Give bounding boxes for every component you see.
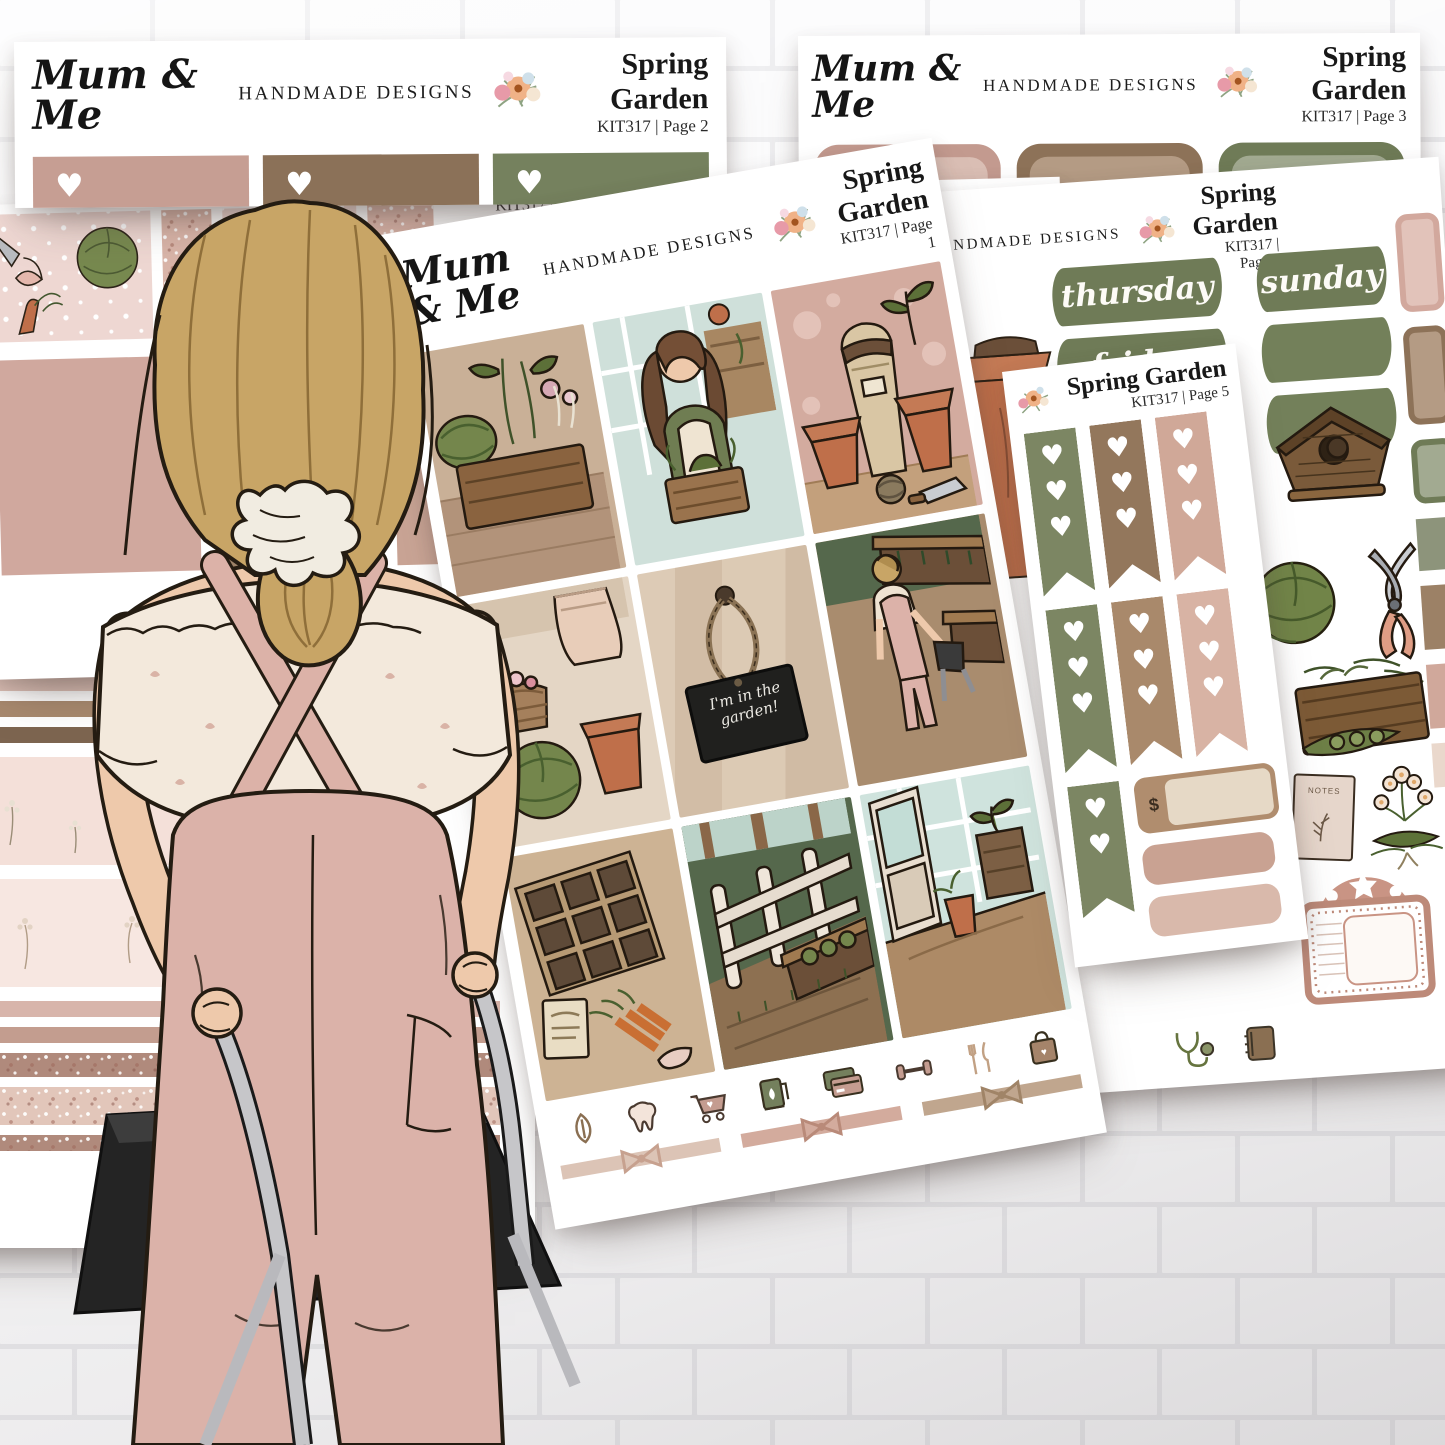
kit-title: Spring Garden [560, 47, 709, 117]
heart-glyph: ♥ [1043, 477, 1070, 507]
full-box-sticker-woman-cart [815, 513, 1027, 786]
fence-garden-illustration [681, 798, 887, 1070]
brick-tile [1240, 1136, 1390, 1202]
shopping-cart-icon: ♥ [686, 1085, 732, 1127]
brick-tile [1317, 1207, 1445, 1273]
brand-logo-caps: HANDMADE DESIGNS [983, 74, 1198, 95]
brand-logo-script: Mum & Me [812, 50, 969, 123]
notes-book-sticker: NOTES [1291, 773, 1356, 861]
heart-checklist-flag: ♥♥♥ [1045, 604, 1117, 773]
pruning-shears-icon [1350, 536, 1444, 667]
brick-tile [930, 1420, 1080, 1445]
heart-glyph: ♥ [1126, 610, 1153, 640]
brick-tile [1085, 1136, 1235, 1202]
garden-cart-woman-illustration [815, 514, 1021, 786]
brick-tile [1317, 1349, 1445, 1415]
heart-glyph: ♥ [1061, 618, 1088, 648]
brick-tile [1240, 1278, 1390, 1344]
pea-pod-icon [1296, 715, 1409, 768]
bow-icon [793, 1106, 850, 1149]
kit-title: Spring Garden [1189, 176, 1278, 242]
notebook-icon [1239, 1022, 1282, 1065]
full-box-sticker-woman-greenhouse [592, 293, 804, 566]
heart-checklist-flag: ♥♥ [1067, 781, 1135, 918]
pink-overalls [133, 791, 503, 1445]
heart-glyph: ♥ [1069, 689, 1096, 719]
brick-tile [930, 1278, 1080, 1344]
brick-tile [697, 1349, 847, 1415]
heart-checklist-flag: ♥♥♥ [1155, 411, 1227, 580]
full-box-sticker-fence-garden [681, 797, 893, 1070]
pill-label-sticker [1147, 882, 1283, 938]
brick-tile [620, 1278, 770, 1344]
brick-tile [1007, 1349, 1157, 1415]
heart-glyph: ♥ [1200, 673, 1227, 703]
day-text: thursday [1060, 269, 1215, 316]
marquee-sign-icon [1296, 859, 1437, 1008]
rounded-box-sticker [1394, 212, 1445, 313]
heart-glyph: ♥ [1104, 433, 1131, 463]
bow-icon [612, 1138, 669, 1181]
stethoscope-icon [1169, 1027, 1216, 1070]
flower-bouquet-icon [488, 67, 546, 119]
sprig-icon [1293, 794, 1349, 846]
heart-glyph: ♥ [1039, 441, 1066, 471]
heart-glyph: ♥ [1135, 681, 1162, 711]
brick-tile [697, 1207, 847, 1273]
full-box-sticker-chalkboard: I'm in the garden! [637, 545, 849, 818]
brick-tile [1395, 1136, 1445, 1202]
brick-tile [775, 1420, 925, 1445]
shopping-bag-icon: ♥ [1022, 1026, 1064, 1070]
full-box-sticker-terracotta-pots [771, 261, 983, 534]
tooth-icon [624, 1098, 663, 1137]
dollar-label: $ [1140, 793, 1168, 817]
cutlery-icon [960, 1037, 1000, 1080]
brick-tile [1085, 1278, 1235, 1344]
heart-glyph: ♥ [1082, 794, 1109, 824]
heart-glyph: ♥ [1048, 513, 1075, 543]
greenhouse-illustration [860, 767, 1066, 1039]
brick-tile [852, 1207, 1002, 1273]
heart-checklist-flag: ♥♥♥ [1089, 419, 1161, 588]
heart-checklist-flag: ♥♥♥ [1176, 588, 1248, 757]
brick-tile [1395, 1420, 1445, 1445]
heart-checklist-flag: ♥♥♥ [1111, 596, 1183, 765]
birdhouse-icon [1260, 395, 1407, 514]
brick-tile [1162, 1349, 1312, 1415]
brick-tile [1162, 1207, 1312, 1273]
full-box-sticker-greenhouse [860, 766, 1072, 1039]
heart-glyph: ♥ [1065, 653, 1092, 683]
brand-logo-caps: HANDMADE DESIGNS [238, 82, 474, 106]
chalkboard-illustration [637, 546, 843, 818]
rounded-box-sticker [1402, 325, 1445, 426]
brick-tile [1240, 1420, 1390, 1445]
product-mockup-scene: Mum & Me HANDMADE DESIGNS [0, 0, 1445, 1445]
heart-glyph: ♥ [1109, 469, 1136, 499]
pill-label-sticker [1141, 831, 1277, 887]
brick-tile [1007, 1207, 1157, 1273]
bow-icon [974, 1074, 1031, 1117]
primrose-flower-icon [1359, 758, 1445, 874]
marquee-sign-sticker [1296, 859, 1437, 1008]
flower-bouquet-icon [1212, 60, 1262, 108]
brick-tile [852, 1349, 1002, 1415]
flower-bouquet-icon [765, 197, 825, 253]
heart-checklist-flag: ♥♥♥ [1024, 427, 1096, 596]
budget-label-sticker: $ [1133, 762, 1281, 835]
brick-tile [620, 1420, 770, 1445]
sticker-sheet-page2: Mum & Me HANDMADE DESIGNS Spring Garden … [14, 37, 727, 208]
brick-tile [1395, 1278, 1445, 1344]
illustrated-woman-figure [55, 195, 595, 1445]
brand-logo-script: Mum & Me [32, 55, 225, 136]
brick-tile [1085, 1420, 1235, 1445]
heart-glyph: ♥ [1179, 496, 1206, 526]
greenhouse-woman-illustration [592, 294, 798, 566]
rounded-box-sticker [1410, 437, 1445, 504]
credit-cards-icon [818, 1062, 867, 1103]
day-text: sunday [1259, 257, 1384, 301]
heart-glyph: ♥ [1192, 602, 1219, 632]
dumbbell-icon [890, 1050, 937, 1091]
kit-title: Spring Garden [1276, 41, 1406, 108]
heart-glyph: ♥ [1087, 830, 1114, 860]
blank-brush-sticker [1260, 317, 1394, 384]
heart-glyph: ♥ [1170, 425, 1197, 455]
heart-glyph: ♥ [1131, 645, 1158, 675]
day-label-sticker-thursday: thursday [1050, 257, 1224, 327]
heart-glyph: ♥ [515, 166, 544, 198]
heart-glyph: ♥ [1113, 505, 1140, 535]
page2-label: KIT317 | Page 2 [560, 116, 708, 137]
brand-logo-caps: HANDMADE DESIGNS [926, 226, 1121, 257]
pots-illustration [771, 262, 977, 534]
brick-tile [775, 1278, 925, 1344]
flower-bouquet-icon [1011, 376, 1058, 427]
flower-bouquet-icon [1133, 208, 1180, 255]
day-label-sticker-sunday: sunday [1255, 246, 1389, 313]
heart-glyph: ♥ [1196, 637, 1223, 667]
heart-glyph: ♥ [1174, 461, 1201, 491]
fuel-pump-icon [754, 1073, 796, 1117]
page3-label: KIT317 | Page 3 [1276, 108, 1406, 127]
